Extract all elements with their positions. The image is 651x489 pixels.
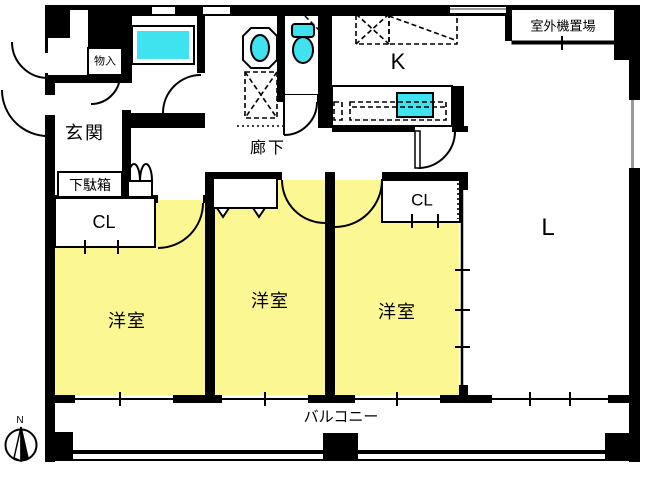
bathtub: [137, 31, 189, 59]
balcony-pillar-left: [48, 432, 73, 461]
western-room-2-floor: [215, 180, 325, 398]
living-east-window: [629, 100, 640, 168]
front-door-swing-1: [12, 42, 48, 78]
compass-north-label: N: [16, 416, 23, 426]
wall-toilet-kitchen: [318, 16, 332, 128]
toilet-door-swing: [284, 102, 317, 135]
balcony-railing-edge: [45, 459, 640, 461]
top-vent-1: [152, 7, 175, 14]
wall-kitchen-stub: [452, 86, 464, 132]
kitchen-top-window-glass: [450, 8, 506, 10]
front-door-opening: [45, 53, 55, 73]
room-label-balcony: バルコニー: [304, 410, 379, 425]
room-label-western-room-2: 洋室: [251, 292, 289, 310]
entrance-cabinet: [128, 181, 152, 197]
entrance-hall-opening: [122, 83, 131, 110]
balcony-railing-outer: [48, 450, 640, 454]
balcony-pillar-center: [323, 433, 358, 461]
wall-bath-bottom: [122, 113, 205, 128]
room-label-shoe-cabinet: 下駄箱: [69, 178, 111, 192]
room-label-hallway: 廊下: [250, 141, 286, 157]
wall-outer-right: [629, 5, 640, 462]
top-vent-2: [203, 7, 230, 14]
room-label-storage: 物入: [94, 57, 116, 68]
room-label-western-room-1: 洋室: [108, 312, 146, 330]
room-label-closet-left: CL: [92, 213, 115, 231]
room-label-living: L: [541, 216, 554, 240]
room2-closet-box: [213, 178, 277, 208]
front-door-swing-2: [2, 90, 48, 136]
meter-niche-b: [70, 10, 88, 75]
kitchen-sink: [397, 93, 433, 117]
wall-room2-room3: [325, 172, 335, 403]
room-label-closet-right: CL: [411, 192, 433, 209]
kitchen-door-panel: [415, 131, 420, 168]
wall-outdoor-left: [505, 16, 512, 41]
kitchen-door-swing: [418, 131, 455, 168]
double-cabinet-door: [128, 164, 152, 181]
wall-room3-living-bottom: [459, 385, 468, 403]
room-label-outdoor-unit: 室外機置場: [530, 20, 595, 33]
front-door-opening-2: [45, 95, 55, 115]
wall-washroom-toilet: [277, 16, 285, 94]
refrigerator-space: [356, 14, 389, 44]
toilet-door-opening: [285, 95, 317, 102]
wash-basin: [251, 35, 269, 61]
living-east-window-glass: [631, 100, 634, 168]
bathroom-door-swing: [163, 75, 201, 113]
compass: [6, 427, 37, 461]
room-label-kitchen: K: [391, 51, 406, 73]
wall-bath-right: [197, 16, 205, 73]
toilet-bowl: [293, 37, 313, 63]
room-label-western-room-3: 洋室: [378, 303, 416, 321]
room-label-entrance: 玄関: [65, 124, 105, 142]
floor-plan: 玄関 物入 下駄箱 廊下 K 室外機置場 CL CL 洋室 洋室 洋室 L バル…: [0, 0, 651, 489]
balcony-pillar-right: [605, 433, 640, 461]
toilet-tank: [292, 24, 314, 37]
wall-top-right-corner: [614, 5, 640, 60]
wall-hall-cl3: [382, 172, 468, 180]
